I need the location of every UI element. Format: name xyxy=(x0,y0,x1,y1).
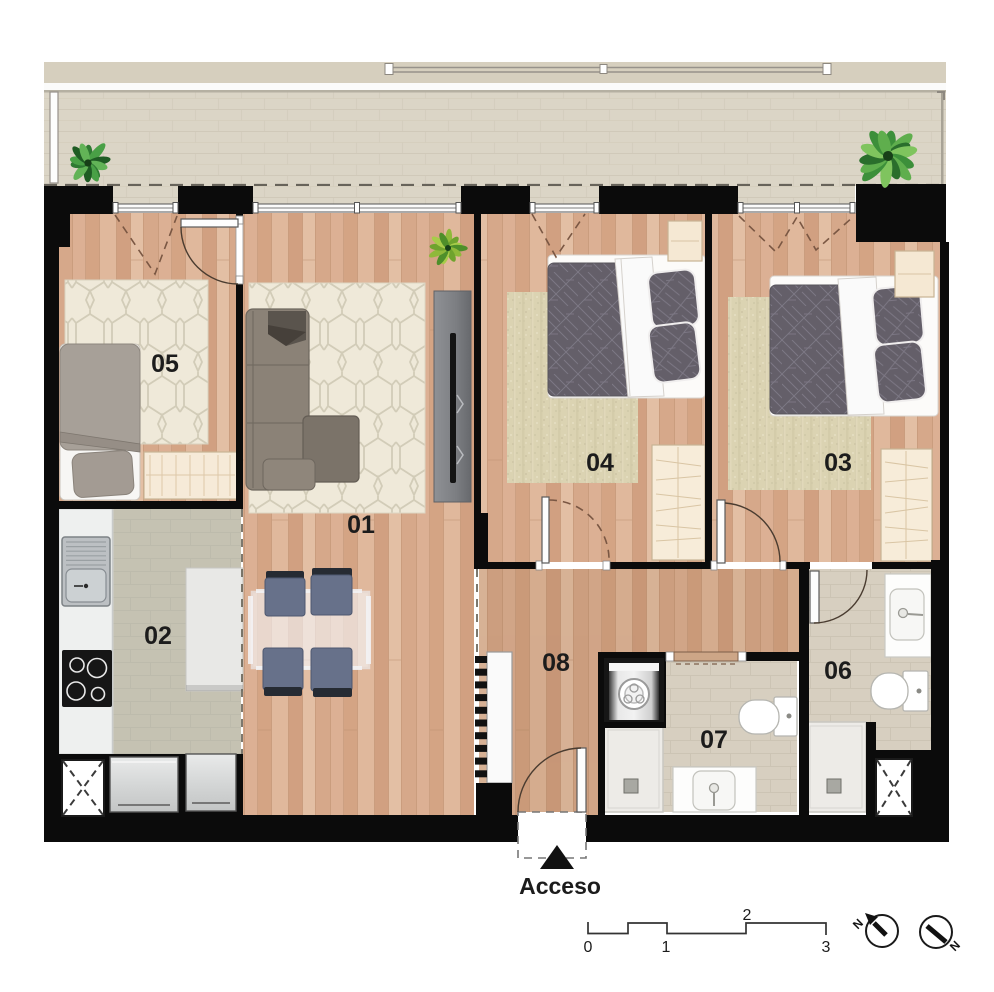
svg-text:05: 05 xyxy=(151,350,179,378)
svg-text:02: 02 xyxy=(144,622,172,650)
svg-text:Acceso: Acceso xyxy=(519,873,601,899)
svg-text:2: 2 xyxy=(743,907,752,924)
svg-text:07: 07 xyxy=(700,726,728,754)
svg-text:01: 01 xyxy=(347,511,375,539)
svg-text:0: 0 xyxy=(584,939,593,956)
svg-text:3: 3 xyxy=(822,939,831,956)
svg-text:04: 04 xyxy=(586,449,614,477)
svg-text:06: 06 xyxy=(824,657,852,685)
svg-text:03: 03 xyxy=(824,449,852,477)
svg-text:1: 1 xyxy=(662,939,671,956)
svg-text:08: 08 xyxy=(542,649,570,677)
